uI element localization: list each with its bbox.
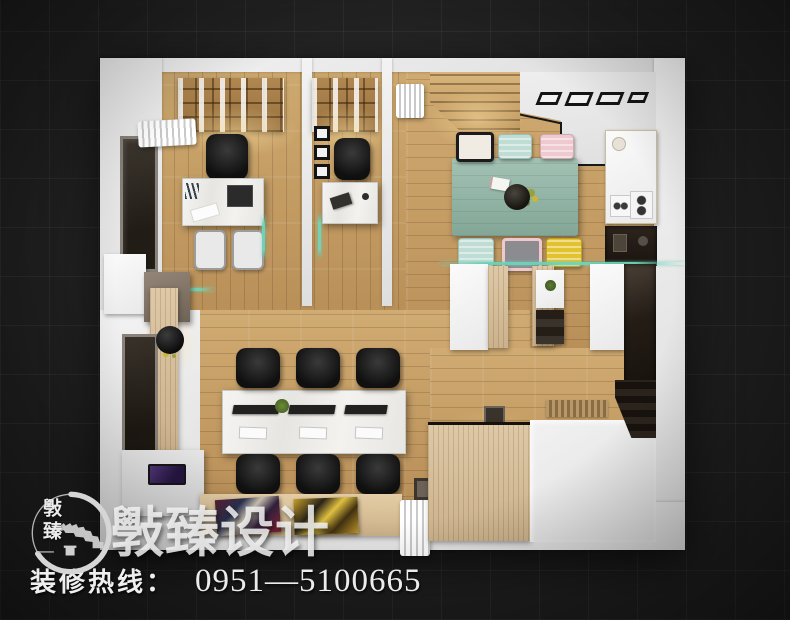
glass-panel-office2: [318, 214, 321, 258]
partition-drawers-dark: [536, 310, 564, 344]
corridor-radiator: [396, 84, 424, 118]
lounge-window: [122, 334, 158, 468]
partition-shelf-plant: [536, 270, 564, 308]
office1-laptop: [227, 185, 253, 207]
office1-window: [120, 136, 158, 272]
keyboard: [299, 427, 327, 440]
hotline-number: 0951—5100665: [195, 563, 422, 600]
office2-desk-chair: [334, 138, 370, 180]
partition-cabinet-white-c: [590, 264, 624, 350]
art-frame: [314, 164, 330, 179]
monitor: [232, 405, 280, 414]
meeting-chair-mint-top: [498, 134, 532, 159]
coffee-machine: [613, 234, 627, 252]
logo-tower: [66, 547, 75, 555]
monitor: [344, 405, 388, 414]
art-frame: [314, 126, 330, 141]
art-frame: [314, 145, 330, 160]
office2-desk: [322, 182, 378, 224]
lounge-tablet: [148, 464, 186, 485]
kitchen-appliance-1: [610, 195, 631, 217]
floor-frame: [535, 92, 562, 105]
office1-radiator: [137, 119, 196, 148]
office1-desk: [182, 178, 264, 226]
studio-chair-top-3: [356, 348, 400, 388]
kitchen-cabinet: [605, 130, 657, 224]
wall-right: [654, 58, 685, 504]
coffee-counter: [605, 226, 657, 266]
meeting-chair-pink-top: [540, 134, 574, 159]
studio-radiator: [400, 500, 430, 556]
lounge-cabinet-white: [104, 254, 146, 314]
floor-frame: [627, 92, 649, 103]
partition-cabinet-white-a: [450, 264, 488, 350]
floor-frame: [595, 92, 624, 105]
wall-divider-office2: [382, 58, 392, 306]
keyboard: [355, 427, 383, 440]
logo-subtext-marks: [38, 551, 54, 553]
floor-frame: [564, 92, 594, 106]
logo-tower-roof: [64, 546, 77, 548]
worktable-plant: [275, 399, 289, 413]
logo-vertical-text: 斅臻: [38, 498, 65, 544]
reception-desk-front: [428, 422, 530, 541]
office2-laptop: [330, 192, 353, 210]
shelf-plant: [545, 280, 556, 291]
studio-chair-top-2: [296, 348, 340, 388]
kitchen-appliance-2: [630, 191, 653, 219]
monitor: [288, 405, 336, 414]
studio-worktable: [222, 390, 406, 454]
brand-logo: 斅臻: [26, 488, 116, 578]
table-centerpiece-tray: [504, 184, 530, 210]
wall-divider-office1: [302, 58, 312, 306]
render-canvas: 斅臻设计 斅臻 装修热线： 0951—5100665: [0, 0, 790, 620]
keyboard: [239, 427, 267, 440]
gallery-frames-row: [538, 92, 648, 106]
office2-art-frames: [314, 126, 330, 182]
kitchen-shelf-item: [612, 137, 626, 151]
office1-pen-tray: [185, 183, 199, 199]
glass-panel-office1: [262, 216, 265, 258]
meeting-chair-black-white: [456, 132, 494, 162]
floorplan-render: [100, 58, 685, 550]
entry-doormat: [546, 400, 608, 417]
partition-cabinet-wood-a: [488, 266, 508, 348]
office1-guest-chair-1: [194, 230, 226, 270]
studio-chair-bottom-3: [356, 454, 400, 494]
wall-top: [100, 58, 685, 72]
office1-desk-chair: [206, 134, 248, 180]
studio-chair-top-1: [236, 348, 280, 388]
office2-bookshelf: [312, 78, 378, 132]
reception-counter: [530, 420, 656, 542]
coffee-kettle: [638, 236, 648, 246]
office2-mug: [362, 193, 369, 200]
lounge-decor-vase: [156, 326, 184, 354]
office1-guest-chair-2: [232, 230, 264, 270]
brand-watermark: 斅臻设计: [110, 488, 330, 567]
office1-paper: [190, 202, 220, 222]
